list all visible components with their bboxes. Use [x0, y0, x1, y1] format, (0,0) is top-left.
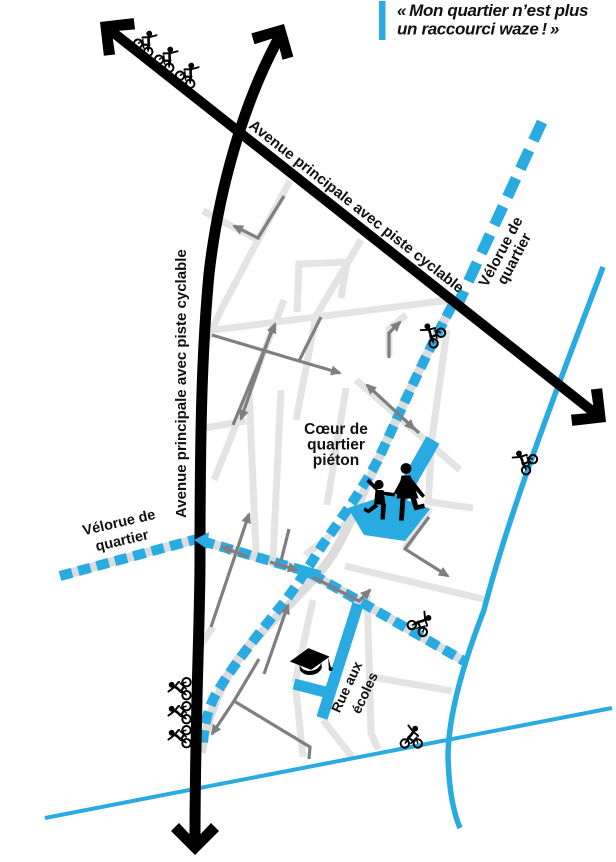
svg-text:« Mon quartier n’est plus: « Mon quartier n’est plus — [397, 1, 588, 20]
svg-text:piéton: piéton — [313, 452, 360, 469]
svg-text:un raccourci waze ! »: un raccourci waze ! » — [397, 20, 559, 39]
svg-text:quartier: quartier — [307, 437, 365, 454]
svg-text:Cœur de: Cœur de — [304, 421, 368, 438]
svg-text:Avenue principale avec piste c: Avenue principale avec piste cyclable — [173, 249, 190, 518]
